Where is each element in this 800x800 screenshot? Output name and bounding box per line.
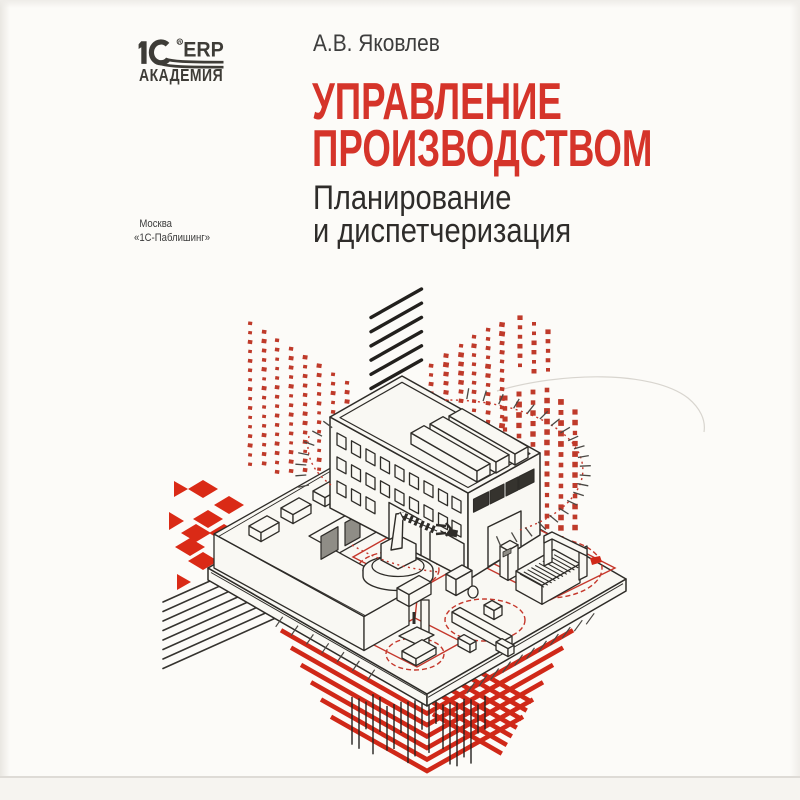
svg-text:R: R: [178, 39, 182, 45]
svg-text:АКАДЕМИЯ: АКАДЕМИЯ: [139, 67, 223, 86]
svg-text:ERP: ERP: [183, 39, 224, 62]
